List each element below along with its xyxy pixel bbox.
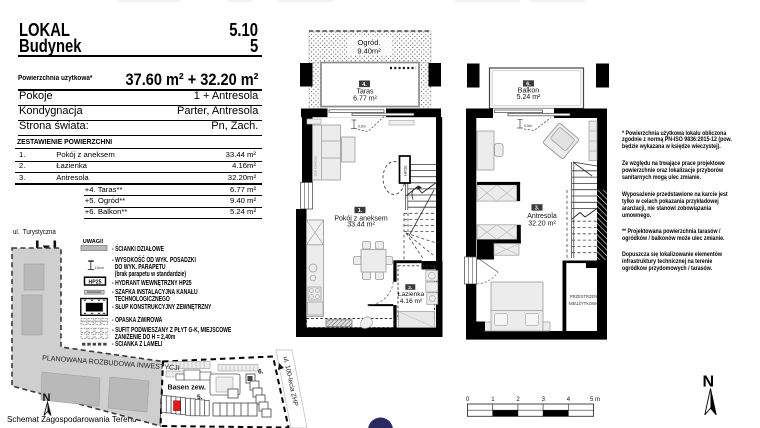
svg-text:1.: 1.: [358, 208, 363, 214]
svg-text:6.: 6.: [526, 81, 531, 87]
svg-text:0,5m: 0,5m: [358, 125, 366, 129]
svg-text:32.20 m²: 32.20 m²: [528, 220, 556, 227]
svg-text:HP25: HP25: [89, 279, 102, 285]
svg-text:4.16 m²: 4.16 m²: [400, 298, 423, 305]
svg-text:0,5m: 0,5m: [524, 124, 532, 128]
svg-text:2.: 2.: [408, 285, 412, 291]
svg-text:4.: 4.: [362, 82, 367, 88]
svg-text:4: 4: [567, 397, 571, 403]
svg-text:6.77 m²: 6.77 m²: [353, 95, 377, 102]
svg-text:HP25: HP25: [403, 165, 408, 176]
svg-text:33.44 m²: 33.44 m²: [347, 222, 375, 229]
svg-text:5.24 m²: 5.24 m²: [517, 94, 541, 101]
svg-text:6.: 6.: [258, 369, 264, 376]
svg-text:Antresola: Antresola: [527, 213, 557, 220]
svg-text:PRZESTRZEŃ: PRZESTRZEŃ: [570, 294, 597, 299]
svg-text:2: 2: [516, 397, 520, 403]
svg-text:3.: 3.: [535, 205, 540, 211]
svg-text:15cm: 15cm: [95, 266, 104, 270]
svg-text:9.40m²: 9.40m²: [357, 47, 381, 56]
svg-text:Taras: Taras: [356, 88, 374, 95]
svg-text:3: 3: [542, 397, 546, 403]
svg-text:1: 1: [491, 397, 495, 403]
svg-text:N: N: [43, 392, 51, 404]
svg-text:2DN KOMODO: 2DN KOMODO: [314, 155, 318, 176]
svg-text:5.: 5.: [197, 394, 203, 401]
svg-text:0: 0: [466, 397, 470, 403]
svg-text:Basen zew.: Basen zew.: [168, 382, 206, 391]
svg-text:5 m: 5 m: [590, 397, 600, 403]
svg-text:NIEUŻYTKOWA: NIEUŻYTKOWA: [569, 301, 599, 306]
svg-text:N: N: [703, 373, 715, 390]
